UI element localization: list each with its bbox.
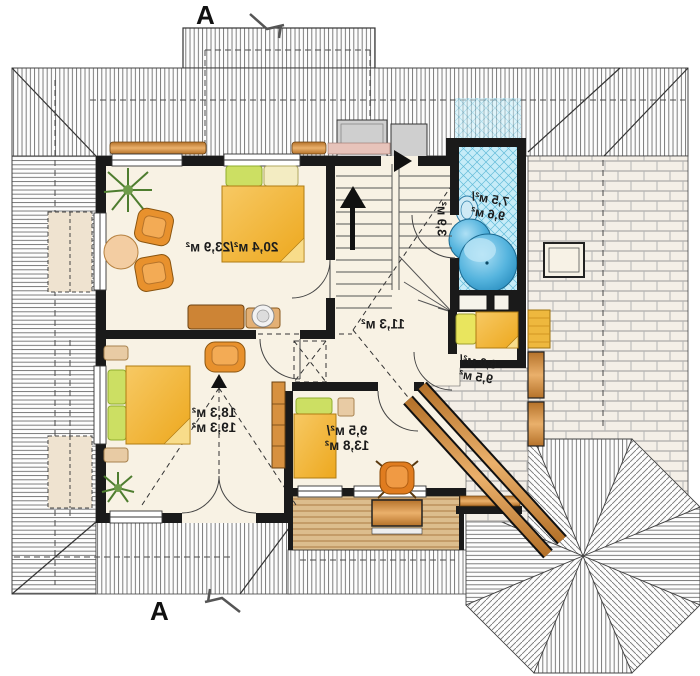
balcony (288, 496, 464, 550)
room-label-master: 20,4 м²/23,9 м² (186, 240, 279, 255)
room-label-bedroom3-line2: 13,8 м² (325, 438, 370, 453)
dormer-window (372, 500, 422, 526)
room-label-hall: 11,3 м² (361, 317, 405, 332)
round-table (104, 235, 138, 269)
wardrobe (272, 382, 285, 468)
floor-plan-drawing (0, 0, 700, 676)
room-label-bedroom2: 18,3 м² 19,3 м² (192, 405, 237, 435)
stool (376, 461, 418, 498)
section-marker-bottom: A (150, 596, 169, 627)
floor-plan: A A 20,4 м²/23,9 м² 11,3 м² 3,9 м² 7,5 м… (0, 0, 700, 676)
room-label-stairs: 3,9 м² (434, 202, 449, 236)
sideboard (188, 305, 280, 329)
room-label-bedroom3-line1: 9,5 м²/ (325, 423, 370, 438)
roof-band-bottom-left (96, 522, 292, 594)
bathroom-skylight (455, 98, 521, 144)
bathroom-fixtures (459, 295, 509, 310)
section-marker-top: A (196, 0, 215, 31)
room-label-bedroom2-line1: 18,3 м² (192, 405, 237, 420)
room-label-bedroom3: 9,5 м²/ 13,8 м² (325, 423, 370, 453)
armchair-bedroom2 (205, 342, 245, 372)
room-label-bedroom2-line2: 19,3 м² (192, 420, 237, 435)
room-label-bath: 7,5 м²/ 9,6 м² (468, 189, 510, 225)
room-label-small: 6,0 м²/ 9,5 м² (456, 352, 498, 388)
roof-window-right (544, 243, 584, 277)
bed-small-room (456, 312, 518, 348)
